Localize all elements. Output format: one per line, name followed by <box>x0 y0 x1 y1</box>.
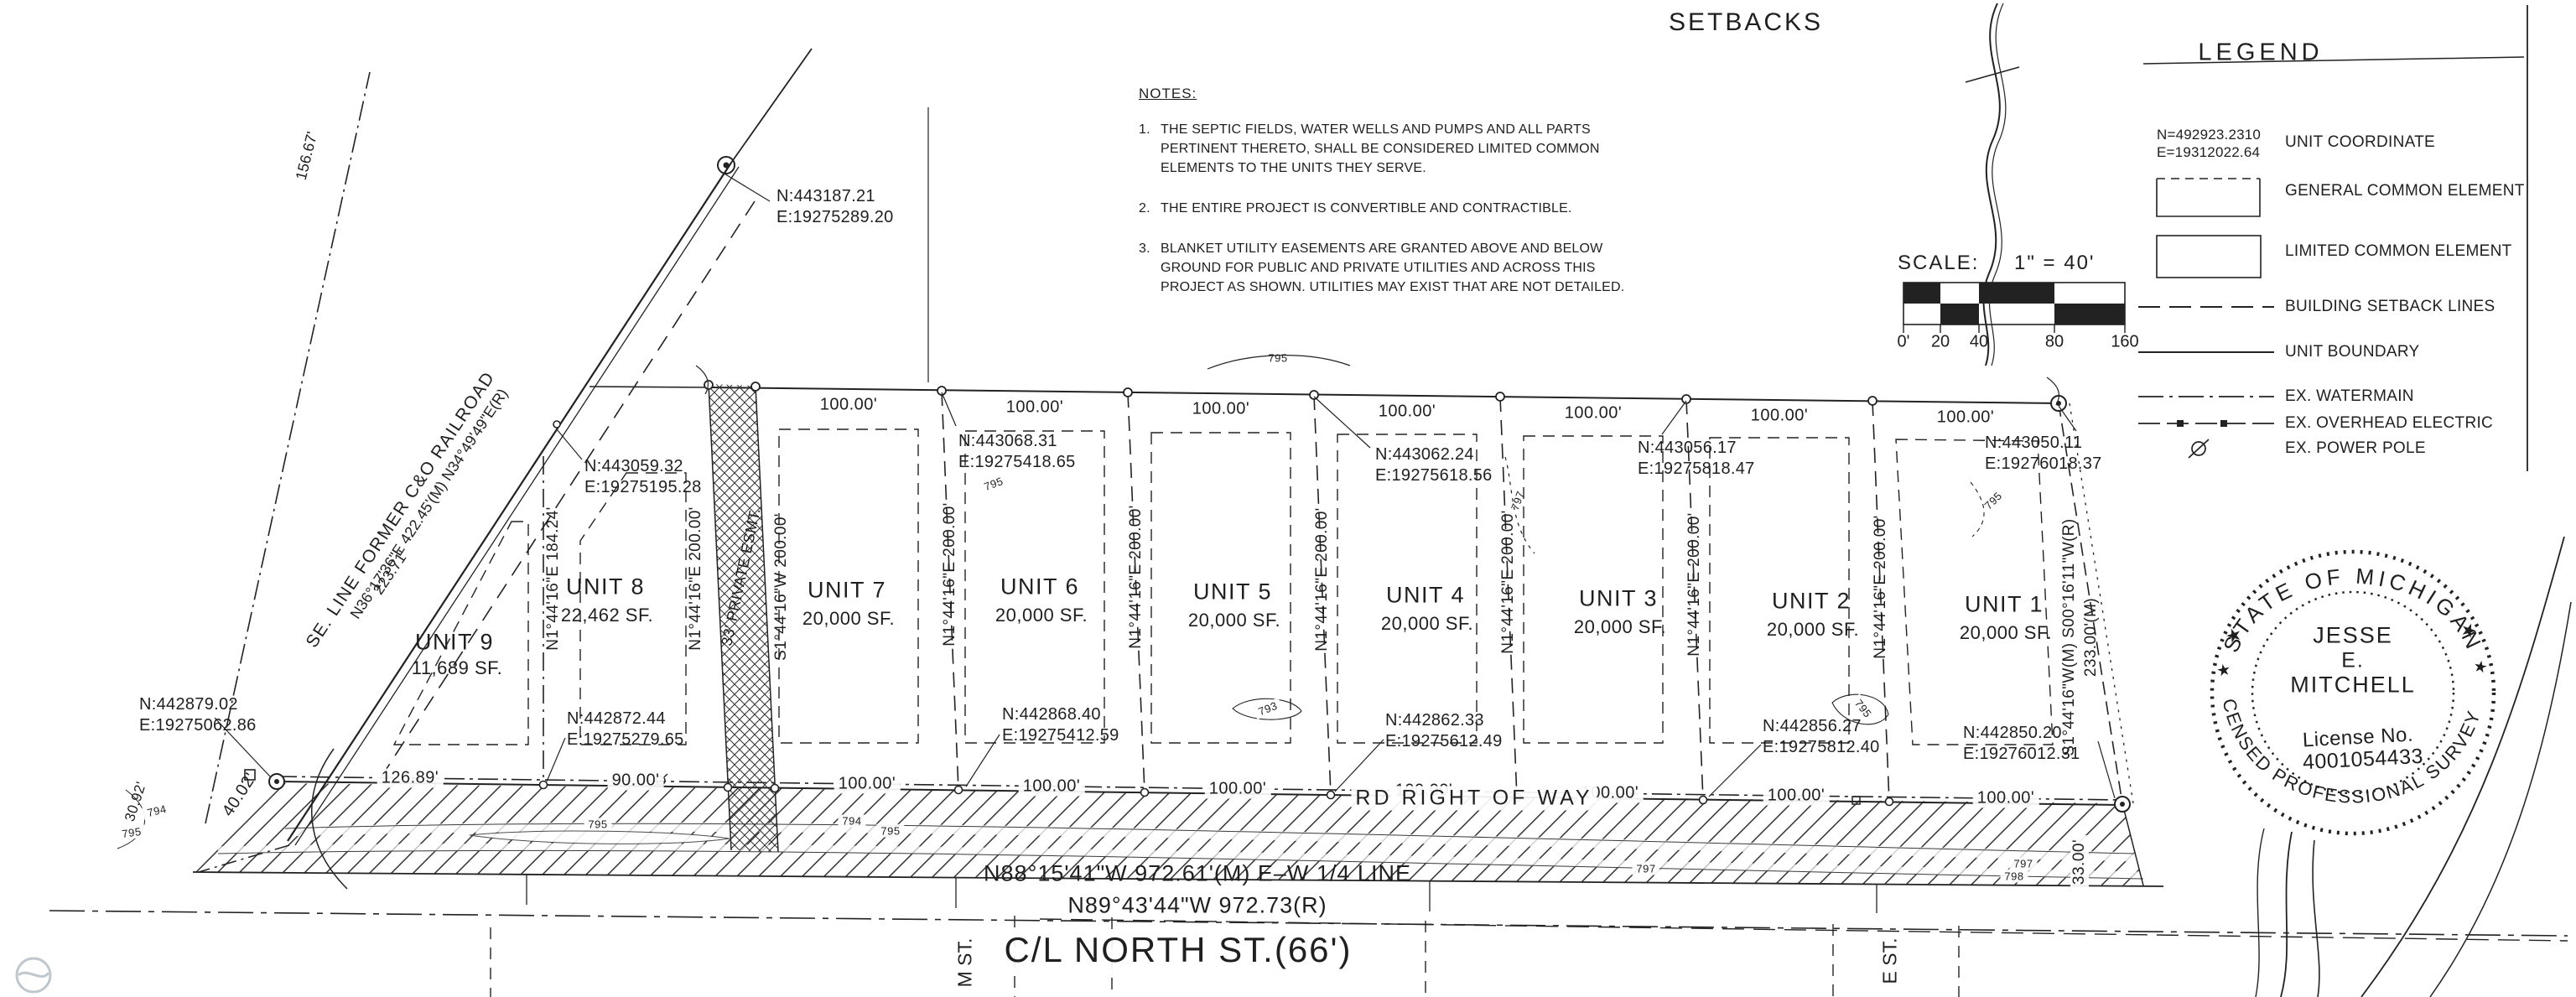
scale-ratio: 1" = 40' <box>2014 252 2096 275</box>
dim-top-2: 100.00' <box>1006 398 1064 418</box>
sheet-title: SETBACKS <box>1669 8 1823 37</box>
legend-item-overhead-electric: EX. OVERHEAD ELECTRIC <box>2285 414 2493 433</box>
legend-item-setback-lines: BUILDING SETBACK LINES <box>2285 298 2495 316</box>
street-left-label: M ST. <box>954 938 977 988</box>
bearing-unit9-east: N1°44'16"E 184.24' <box>544 506 563 650</box>
road-band-label: RD RIGHT OF WAY <box>1351 787 1597 811</box>
seal-name-first: JESSE <box>2313 623 2393 649</box>
unit-4-label: UNIT 4 <box>1386 583 1465 609</box>
dim-bottom-6: 100.00' <box>1763 787 1830 806</box>
dim-top-1: 100.00' <box>820 396 878 415</box>
unit-4-area: 20,000 SF. <box>1381 613 1473 635</box>
contour-795-g: 795 <box>876 825 904 838</box>
coord-railroad-top: N:443187.21E:19275289.20 <box>776 186 894 228</box>
legend-item-limited-common: LIMITED COMMON ELEMENT <box>2285 242 2512 261</box>
unit-1-area: 20,000 SF. <box>1960 622 2052 644</box>
notes-block: NOTES: 1. THE SEPTIC FIELDS, WATER WELLS… <box>1139 84 1675 318</box>
dim-bottom-126: 126.89' <box>377 769 444 788</box>
seal-name-middle: E. <box>2341 649 2365 673</box>
scale-tick-0: 0' <box>1898 333 1910 352</box>
coord-unit4-top: N:443062.24E:19275618.56 <box>1375 444 1493 486</box>
coord-bottom-2: N:442868.40E:19275412.59 <box>1002 704 1119 746</box>
bearing-divider-6: N1°44'16"E 200.00' <box>1872 515 1890 658</box>
coord-unit2-top: N:443056.17E:19275818.47 <box>1638 438 1755 480</box>
dim-top-4: 100.00' <box>1379 402 1436 422</box>
coord-bottom-1: N:442872.44E:19275279.65 <box>567 709 684 750</box>
bearing-east-boundary-1: S1°44'16"W(M) S00°16'11"W(R) <box>2060 518 2079 756</box>
quarter-line-record: N89°43'44"W 972.73(R) <box>1067 893 1327 919</box>
seal-name-last: MITCHELL <box>2290 672 2416 698</box>
unit-2-area: 20,000 SF. <box>1767 619 1859 641</box>
bearing-easement-east: S1°44'16"W 200.00' <box>772 513 791 661</box>
contour-797-c: 797 <box>2009 858 2037 870</box>
dim-bottom-90: 90.00' <box>608 771 664 791</box>
legend-unit-coordinate-sample: N=492923.2310 E=19312022.64 <box>2157 126 2261 161</box>
bearing-divider-3: N1°44'16"E 200.00' <box>1313 507 1332 651</box>
quarter-line-measured: N88°15'41"W 972.61'(M) E–W 1/4 LINE <box>984 861 1411 887</box>
contour-798-a: 798 <box>2000 870 2028 883</box>
dim-top-3: 100.00' <box>1192 400 1250 419</box>
scale-bar <box>1903 283 2125 333</box>
coord-unit8-nw: N:443059.32E:19275195.28 <box>584 456 702 498</box>
legend-item-power-pole: EX. POWER POLE <box>2285 439 2426 458</box>
dim-bottom-1: 100.00' <box>834 775 901 794</box>
unit-3-area: 20,000 SF. <box>1574 616 1666 638</box>
legend-title: LEGEND <box>2198 39 2323 67</box>
scale-tick-20: 20 <box>1931 333 1950 352</box>
note-item: 1. THE SEPTIC FIELDS, WATER WELLS AND PU… <box>1139 120 1675 178</box>
power-pole-icon <box>2189 439 2209 458</box>
unit-6-area: 20,000 SF. <box>995 605 1088 626</box>
unit-9-label: UNIT 9 <box>415 630 494 656</box>
scale-tick-80: 80 <box>2045 333 2064 352</box>
scale-label: SCALE: <box>1898 252 1979 275</box>
dim-bottom-2: 100.00' <box>1019 777 1085 797</box>
dim-bottom-7: 100.00' <box>1973 789 2039 808</box>
unit-3-label: UNIT 3 <box>1579 586 1658 612</box>
street-right-label: E ST. <box>1879 938 1902 984</box>
contour-795-f: 795 <box>584 818 611 831</box>
unit-7-area: 20,000 SF. <box>802 608 895 630</box>
dim-top-7: 100.00' <box>1937 408 1995 428</box>
corner-artifact <box>17 958 50 992</box>
dim-bottom-3: 100.00' <box>1205 780 1271 799</box>
contour-794-b: 794 <box>838 815 865 828</box>
legend-item-watermain: EX. WATERMAIN <box>2285 387 2414 406</box>
legend-item-general-common: GENERAL COMMON ELEMENT <box>2285 182 2525 200</box>
bearing-easement-west: N1°44'16"E 200.00' <box>687 506 705 650</box>
contour-795-a: 795 <box>1268 352 1287 365</box>
dim-33: 33.00' <box>2070 835 2089 889</box>
bearing-divider-5: N1°44'16"E 200.00' <box>1685 512 1704 656</box>
coord-bottom-3: N:442862.33E:19275612.49 <box>1385 710 1503 752</box>
survey-plat-sheet: STATE OF MICHIGAN LICENSED PROFESSIONAL … <box>0 0 2576 997</box>
unit-5-area: 20,000 SF. <box>1188 610 1280 631</box>
coord-bottom-4: N:442856.27E:19275812.40 <box>1763 716 1880 758</box>
coord-bottom-5: N:442850.20E:19276012.31 <box>1963 723 2080 765</box>
notes-title: NOTES: <box>1139 84 1675 103</box>
coord-unit1-top: N:443050.11E:19276018.37 <box>1985 433 2102 475</box>
unit-2-label: UNIT 2 <box>1772 589 1851 615</box>
unit-9-area: 11,689 SF. <box>412 657 503 679</box>
bearing-divider-1: N1°44'16"E 200.00' <box>941 502 959 646</box>
contour-797-b: 797 <box>1632 863 1659 875</box>
bearing-east-boundary-2: 233.00'(M) <box>2082 598 2101 677</box>
coord-southwest: N:442879.02E:19275062.86 <box>139 694 257 736</box>
unit-5-label: UNIT 5 <box>1193 579 1272 605</box>
legend-item-unit-coordinate: UNIT COORDINATE <box>2285 133 2435 152</box>
coord-unit6-top: N:443068.31E:19275418.65 <box>958 431 1076 473</box>
street-centerline-label: C/L NORTH ST.(66') <box>1000 930 1356 970</box>
unit-8-label: UNIT 8 <box>566 574 645 600</box>
note-item: 3. BLANKET UTILITY EASEMENTS ARE GRANTED… <box>1139 239 1675 297</box>
dim-top-6: 100.00' <box>1751 407 1809 426</box>
scale-tick-40: 40 <box>1970 333 1988 352</box>
legend-item-unit-boundary: UNIT BOUNDARY <box>2285 343 2420 361</box>
unit-6-label: UNIT 6 <box>1000 574 1079 600</box>
scale-tick-160: 160 <box>2111 333 2138 352</box>
unit-7-label: UNIT 7 <box>808 578 886 604</box>
unit-1-label: UNIT 1 <box>1965 592 2044 618</box>
bearing-divider-2: N1°44'16"E 200.00' <box>1127 505 1145 648</box>
dim-top-5: 100.00' <box>1565 404 1623 423</box>
unit-8-area: 22,462 SF. <box>561 605 653 626</box>
note-item: 2. THE ENTIRE PROJECT IS CONVERTIBLE AND… <box>1139 199 1675 218</box>
bearing-divider-4: N1°44'16"E 200.00' <box>1499 510 1518 653</box>
